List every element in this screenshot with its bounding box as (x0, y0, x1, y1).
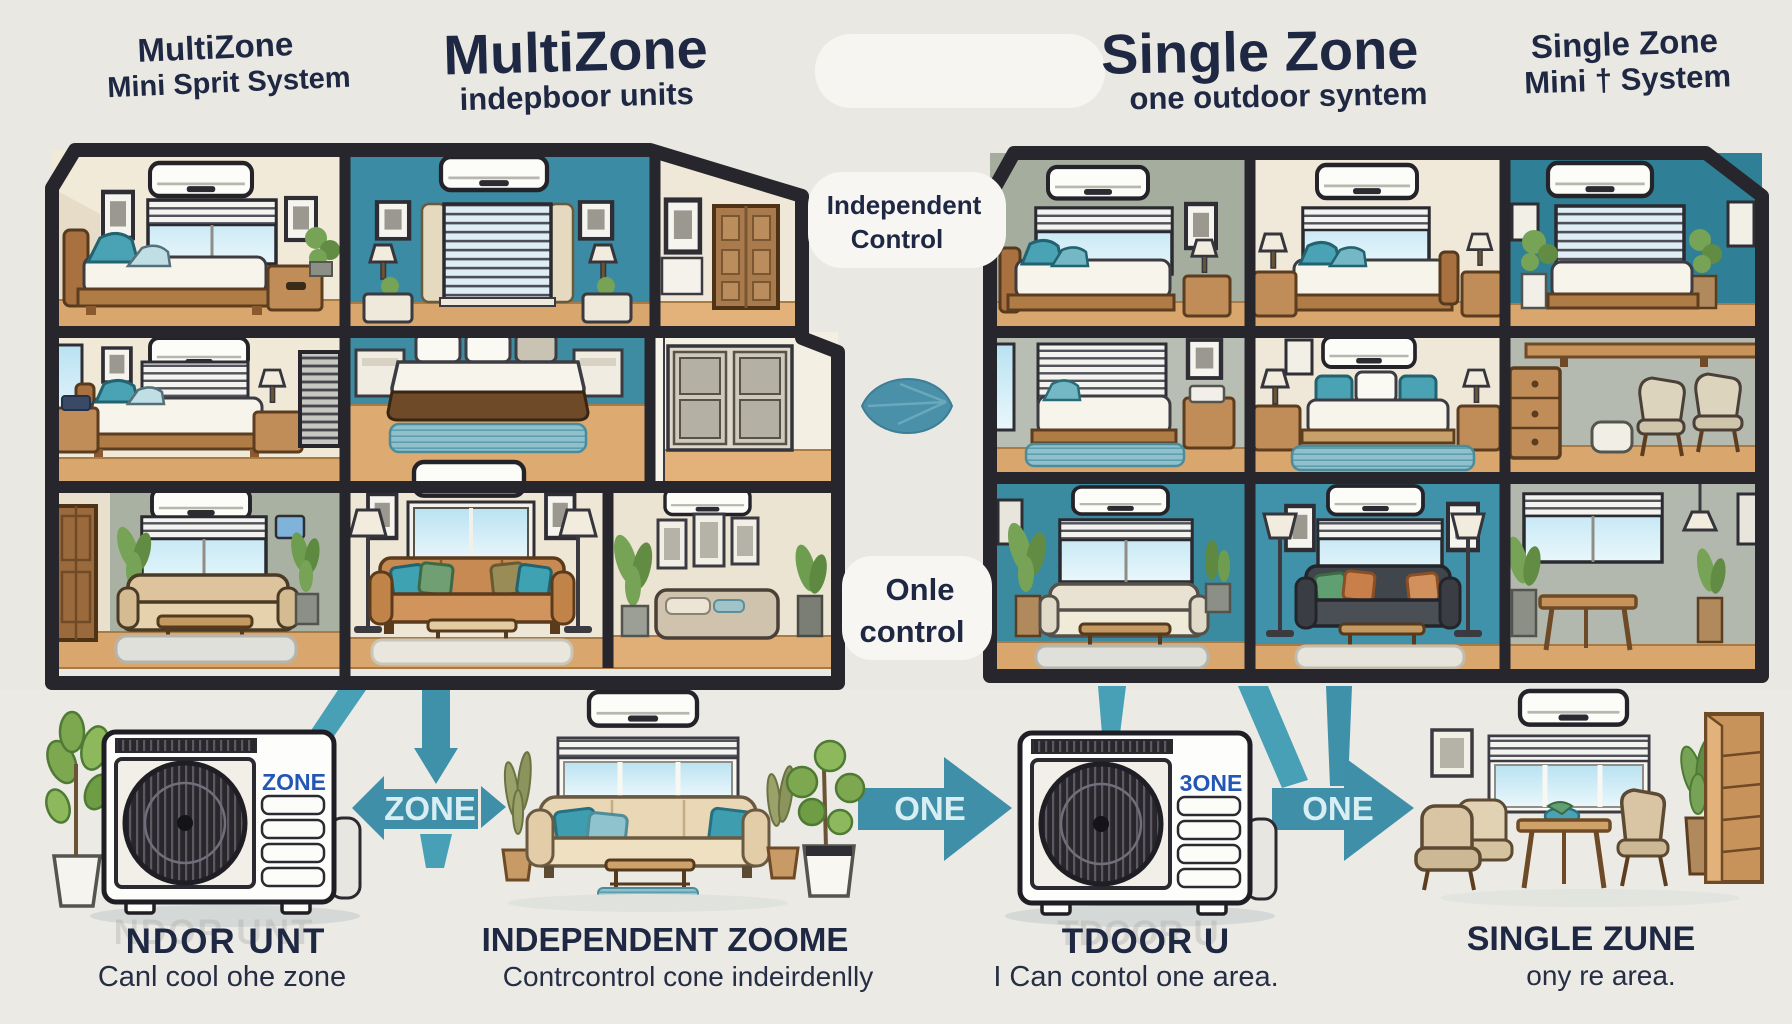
svg-text:Control: Control (851, 224, 943, 254)
svg-text:I Can contol one area.: I Can contol one area. (993, 961, 1278, 993)
svg-text:Canl cool ohe zone: Canl cool ohe zone (98, 961, 346, 993)
svg-text:control: control (859, 614, 964, 649)
svg-text:one outdoor syntem: one outdoor syntem (1129, 76, 1428, 116)
svg-text:NDOR UNT: NDOR UNT (126, 922, 327, 961)
svg-text:ONE: ONE (894, 790, 966, 827)
svg-text:indepboor units: indepboor units (459, 76, 694, 117)
svg-text:ZONE: ZONE (262, 769, 326, 795)
svg-text:INDEPENDENT ZOOME: INDEPENDENT ZOOME (482, 921, 849, 958)
svg-text:ONE: ONE (1302, 790, 1374, 827)
svg-text:Single Zone: Single Zone (1100, 17, 1418, 86)
svg-text:Contrcontrol cone indeirdenlly: Contrcontrol cone indeirdenlly (503, 961, 873, 992)
svg-text:MultiZone: MultiZone (137, 25, 294, 69)
svg-text:Onle: Onle (886, 572, 955, 607)
svg-text:3ONE: 3ONE (1180, 770, 1243, 796)
svg-text:Mini † System: Mini † System (1524, 58, 1732, 100)
svg-text:TDOOR U: TDOOR U (1062, 922, 1230, 961)
svg-text:ony re area.: ony re area. (1526, 960, 1675, 991)
svg-text:ZONE: ZONE (384, 790, 476, 827)
svg-text:SINGLE ZUNE: SINGLE ZUNE (1467, 920, 1696, 958)
svg-text:Independent: Independent (827, 190, 982, 220)
